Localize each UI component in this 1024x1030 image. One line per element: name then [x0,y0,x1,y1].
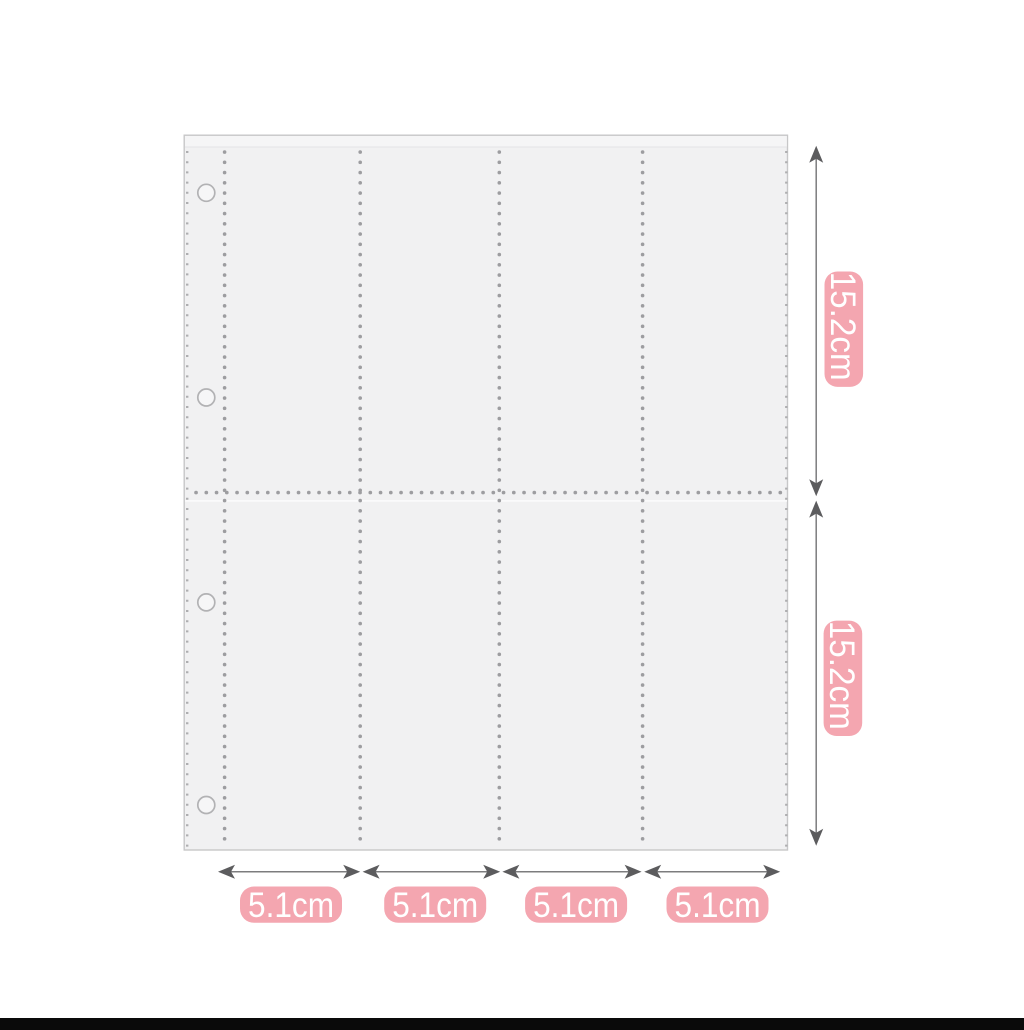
svg-text:5.1cm: 5.1cm [248,886,334,925]
svg-text:5.1cm: 5.1cm [533,886,619,925]
svg-text:5.1cm: 5.1cm [675,886,761,925]
svg-text:5.1cm: 5.1cm [392,886,478,925]
svg-text:15.2cm: 15.2cm [822,621,861,730]
svg-text:15.2cm: 15.2cm [823,272,862,381]
